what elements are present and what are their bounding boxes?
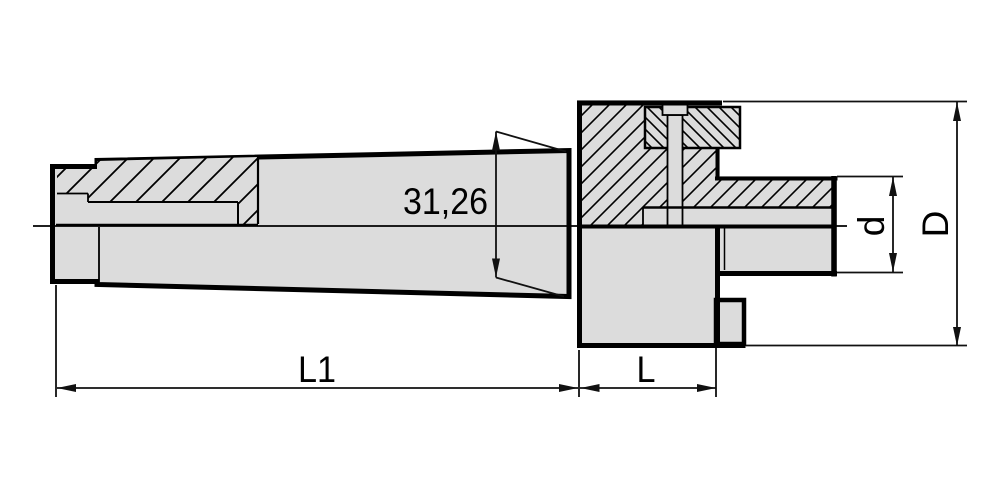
drawing-canvas: 31,26 L1 L d D	[0, 0, 1000, 500]
arrow-up-icon	[889, 177, 897, 196]
arrow-up-icon	[953, 102, 961, 121]
arbor-head	[577, 100, 838, 348]
head-length-label: L	[637, 349, 656, 390]
head-section-hatch-right	[682, 148, 717, 207]
clamp-nut-section	[645, 107, 740, 148]
screw-head	[663, 104, 688, 115]
arrow-right-icon	[697, 384, 716, 392]
flange-section-hatch	[717, 179, 834, 207]
technical-drawing: 31,26 L1 L d D	[0, 0, 1000, 500]
seat-diameter-label: d	[851, 216, 892, 237]
screw-shank	[668, 115, 683, 226]
arrow-left-icon	[581, 384, 600, 392]
arrow-up-icon	[492, 132, 500, 151]
shank-length-label: L1	[298, 349, 336, 390]
head-body-lower-fill	[577, 227, 720, 348]
flange-diameter-label: D	[915, 211, 956, 238]
arrow-left-icon	[57, 384, 76, 392]
center-line	[33, 225, 847, 227]
arrow-down-icon	[953, 327, 961, 346]
taper-shank	[53, 151, 570, 297]
gauge-diameter-label: 31,26	[403, 181, 488, 222]
dim-head-length: L	[580, 348, 716, 397]
drive-key	[716, 300, 744, 344]
dim-seat-diameter: d	[837, 177, 903, 273]
arrow-right-icon	[559, 384, 578, 392]
arrow-down-icon	[889, 253, 897, 272]
dim-shank-length: L1	[56, 285, 579, 397]
